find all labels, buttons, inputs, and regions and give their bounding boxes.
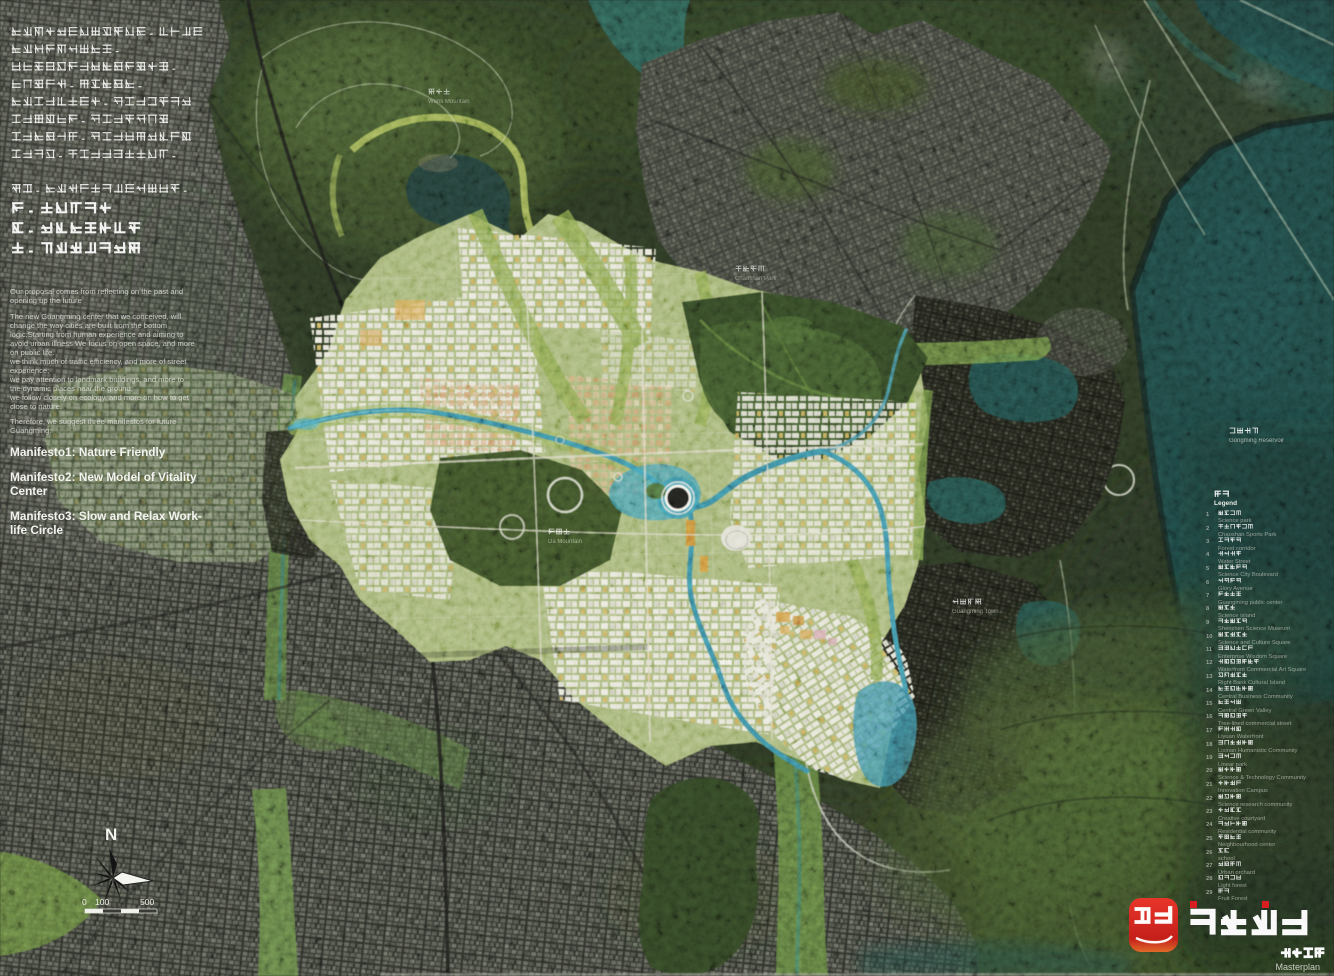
- svg-text:11: 11: [1206, 647, 1213, 653]
- svg-text:experience;: experience;: [10, 366, 49, 375]
- svg-text:100: 100: [95, 897, 109, 907]
- svg-text:12: 12: [1206, 660, 1212, 666]
- svg-text:Science & Technology Community: Science & Technology Community: [1218, 775, 1306, 781]
- svg-text:Guangming:: Guangming:: [10, 426, 51, 435]
- svg-text:Water Street: Water Street: [1218, 559, 1251, 565]
- svg-text:Da Mountain: Da Mountain: [548, 539, 582, 545]
- svg-text:Neighbourhood center: Neighbourhood center: [1218, 842, 1275, 848]
- svg-text:close to nature.: close to nature.: [10, 402, 62, 411]
- svg-text:Creative courtyard: Creative courtyard: [1218, 816, 1265, 822]
- svg-text:Innovation Campus: Innovation Campus: [1218, 788, 1268, 794]
- svg-text:7: 7: [1206, 593, 1209, 599]
- svg-text:opening up the future: opening up the future: [10, 296, 82, 305]
- svg-text:Wens Mountain: Wens Mountain: [428, 99, 470, 105]
- svg-text:Glory Avenue: Glory Avenue: [1218, 586, 1253, 592]
- svg-text:29: 29: [1206, 890, 1213, 896]
- svg-text:Science research community: Science research community: [1218, 802, 1293, 808]
- svg-text:on public life.: on public life.: [10, 348, 54, 357]
- svg-text:we think much of traffic effic: we think much of traffic efficiency, and…: [9, 357, 187, 366]
- svg-text:Science park: Science park: [1218, 518, 1252, 524]
- svg-text:5: 5: [1206, 566, 1210, 572]
- svg-text:Manifesto1: Nature Friendly: Manifesto1: Nature Friendly: [10, 445, 166, 459]
- svg-text:0: 0: [82, 897, 87, 907]
- svg-text:22: 22: [1206, 796, 1212, 802]
- svg-text:16: 16: [1206, 714, 1213, 720]
- svg-text:Liyuan Waterfront: Liyuan Waterfront: [1218, 734, 1264, 740]
- svg-text:28: 28: [1206, 876, 1213, 882]
- svg-text:avoid urban illness.We focus o: avoid urban illness.We focus on open spa…: [10, 339, 195, 348]
- svg-text:Manifesto2: New Model of Vital: Manifesto2: New Model of Vitality: [10, 470, 197, 484]
- svg-text:Legend: Legend: [1214, 500, 1237, 507]
- svg-text:the dynamic places near the gr: the dynamic places near the ground;: [10, 384, 133, 393]
- svg-text:25: 25: [1206, 836, 1213, 842]
- svg-text:17: 17: [1206, 728, 1212, 734]
- svg-text:Therefore, we suggest three ma: Therefore, we suggest three manifestos f…: [10, 417, 176, 426]
- svg-text:Chaoshan Park: Chaoshan Park: [735, 276, 777, 282]
- svg-text:change the way cities are buil: change the way cities are built from the…: [10, 321, 167, 330]
- svg-text:Tree-lined commercial street: Tree-lined commercial street: [1218, 721, 1292, 727]
- svg-text:8: 8: [1206, 606, 1210, 612]
- svg-text:Our proposal comes from reflec: Our proposal comes from reflecting on th…: [10, 287, 183, 296]
- svg-text:500: 500: [140, 897, 154, 907]
- svg-text:10: 10: [1206, 634, 1212, 640]
- svg-text:6: 6: [1206, 580, 1210, 586]
- svg-text:The new Guangming center that: The new Guangming center that we conceiv…: [10, 312, 182, 321]
- svg-text:26: 26: [1206, 850, 1213, 856]
- svg-text:Science City Boulevard: Science City Boulevard: [1218, 572, 1278, 578]
- svg-text:Residential community: Residential community: [1218, 829, 1276, 835]
- svg-text:Masterplan: Masterplan: [1275, 962, 1320, 972]
- svg-text:Light forest: Light forest: [1218, 883, 1247, 889]
- svg-text:Science island: Science island: [1218, 613, 1255, 619]
- svg-text:4: 4: [1206, 552, 1210, 558]
- svg-text:21: 21: [1206, 782, 1213, 788]
- svg-text:2: 2: [1206, 526, 1209, 532]
- svg-text:logic.Starting from human expe: logic.Starting from human experience and…: [10, 330, 184, 339]
- svg-text:24: 24: [1206, 822, 1213, 828]
- svg-text:school: school: [1218, 856, 1235, 862]
- svg-text:Chaoshan Sports Park: Chaoshan Sports Park: [1218, 532, 1276, 538]
- svg-text:18: 18: [1206, 742, 1213, 748]
- svg-text:Central Business Community: Central Business Community: [1218, 694, 1293, 700]
- svg-text:Gongming Reservoir: Gongming Reservoir: [1229, 438, 1284, 444]
- svg-text:Waterfront Commercial Art Squa: Waterfront Commercial Art Square: [1218, 667, 1306, 673]
- svg-text:Center: Center: [10, 484, 48, 498]
- svg-text:Lixinan Humanistic Community: Lixinan Humanistic Community: [1218, 748, 1298, 754]
- svg-text:N: N: [105, 825, 117, 844]
- svg-text:we follow closely on ecology,: we follow closely on ecology, and more o…: [9, 393, 190, 402]
- svg-text:Guangming Town: Guangming Town: [952, 609, 999, 615]
- svg-text:15: 15: [1206, 701, 1213, 707]
- svg-text:Right Bank Cultural Island: Right Bank Cultural Island: [1218, 680, 1285, 686]
- svg-text:Hu Mountain: Hu Mountain: [718, 669, 752, 675]
- svg-text:1: 1: [1206, 512, 1210, 518]
- svg-text:9: 9: [1206, 620, 1210, 626]
- svg-text:Science and Culture Square: Science and Culture Square: [1218, 640, 1291, 646]
- svg-text:14: 14: [1206, 688, 1213, 694]
- svg-text:Manifesto3: Slow and Relax Wor: Manifesto3: Slow and Relax Work-: [10, 509, 202, 523]
- svg-text:3: 3: [1206, 539, 1210, 545]
- svg-text:we pay attention to landmark b: we pay attention to landmark buildings, …: [9, 375, 184, 384]
- svg-text:life Circle: life Circle: [10, 523, 64, 537]
- svg-text:Shenzhen Science Museum: Shenzhen Science Museum: [1218, 626, 1290, 632]
- svg-text:19: 19: [1206, 755, 1213, 761]
- svg-text:23: 23: [1206, 809, 1213, 815]
- svg-text:Fruit Forest: Fruit Forest: [1218, 896, 1248, 902]
- svg-text:27: 27: [1206, 863, 1212, 869]
- svg-text:20: 20: [1206, 768, 1212, 774]
- svg-text:13: 13: [1206, 674, 1213, 680]
